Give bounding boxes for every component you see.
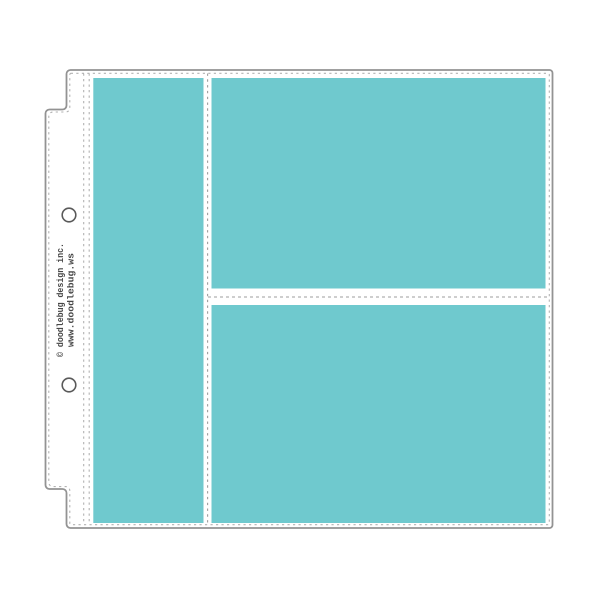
svg-text:© doodlebug design inc.: © doodlebug design inc. xyxy=(56,243,66,357)
svg-text:www.doodlebug.ws: www.doodlebug.ws xyxy=(67,253,77,347)
